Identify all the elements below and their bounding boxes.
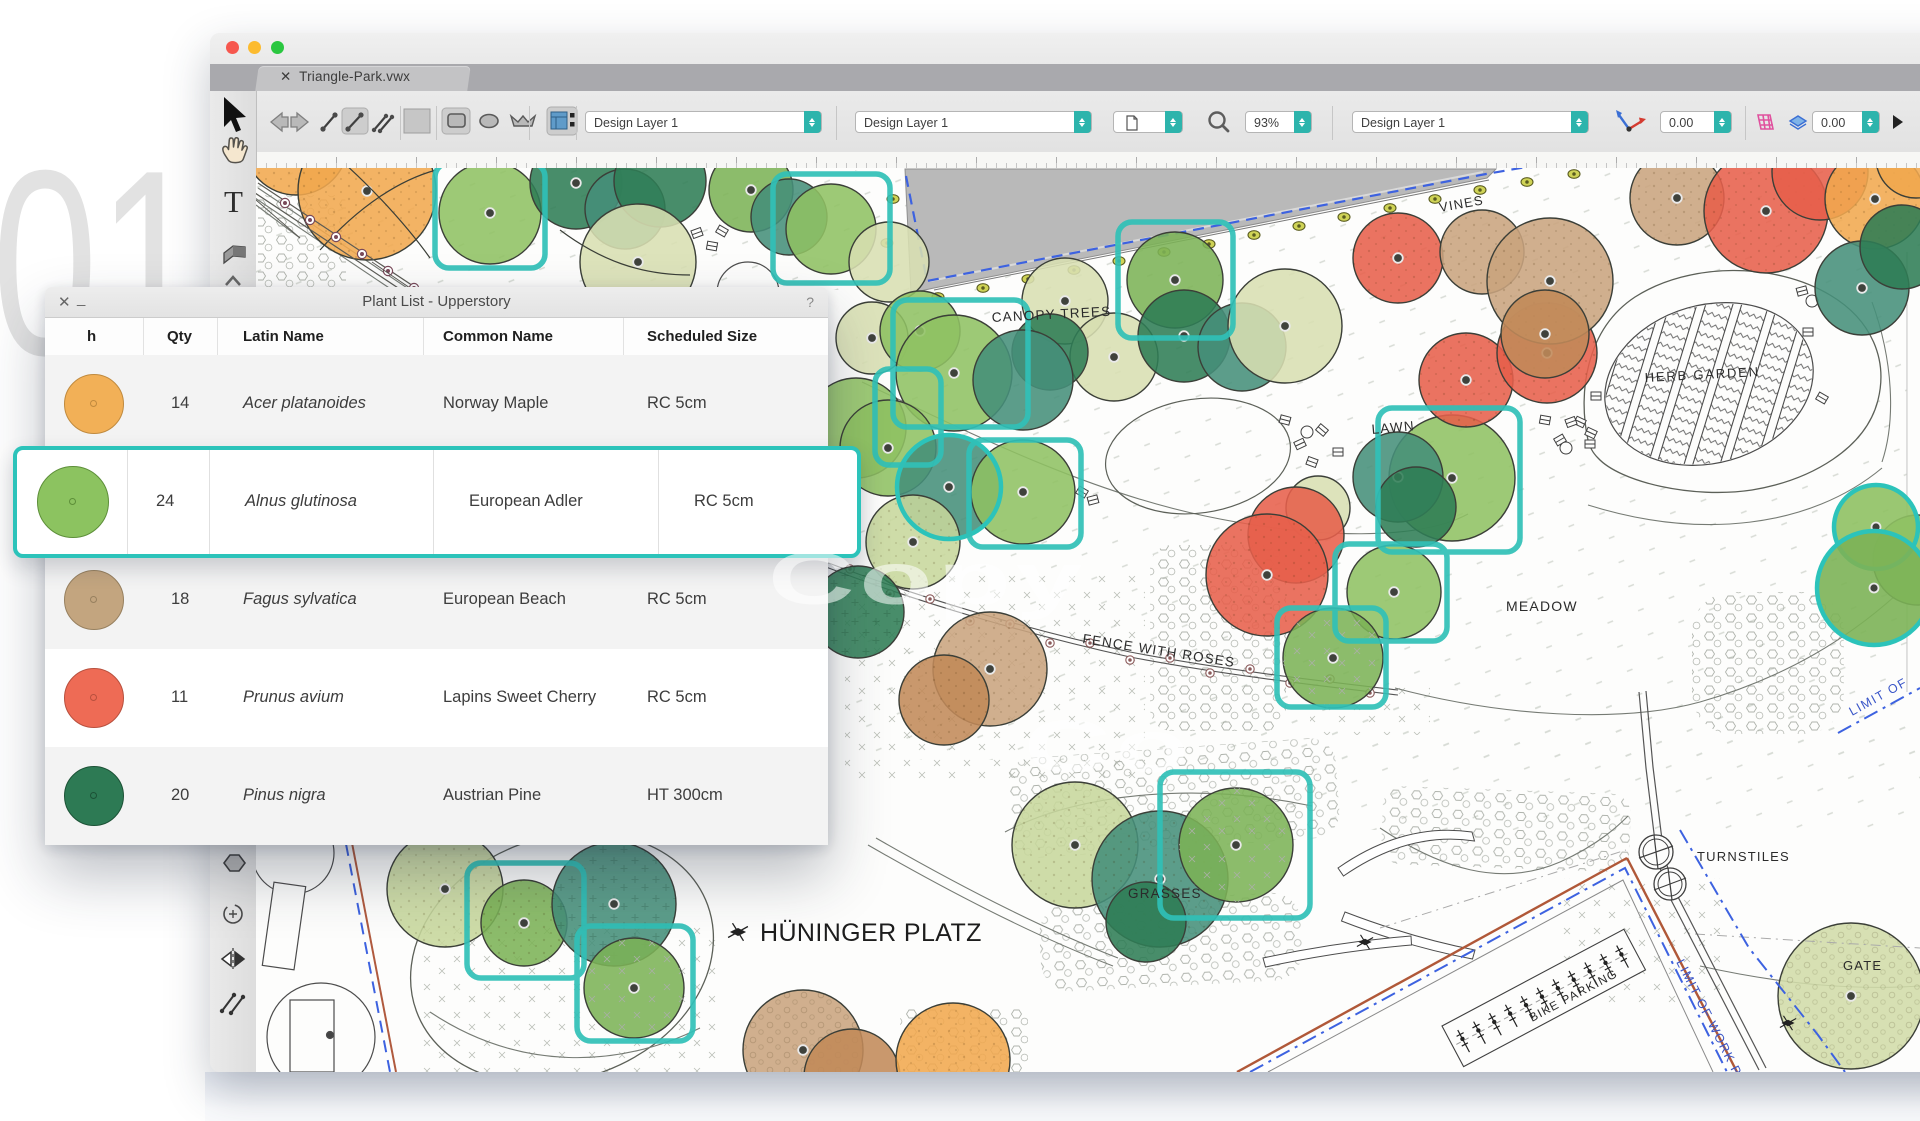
svg-text:T: T bbox=[224, 184, 243, 219]
svg-text:TURNSTILES: TURNSTILES bbox=[1697, 849, 1790, 864]
svg-text:GATE: GATE bbox=[1843, 958, 1882, 973]
svg-text:GRASSES: GRASSES bbox=[1128, 886, 1202, 901]
svg-text:MEADOW: MEADOW bbox=[1506, 598, 1578, 614]
svg-text:HÜNINGER PLATZ: HÜNINGER PLATZ bbox=[760, 919, 982, 947]
